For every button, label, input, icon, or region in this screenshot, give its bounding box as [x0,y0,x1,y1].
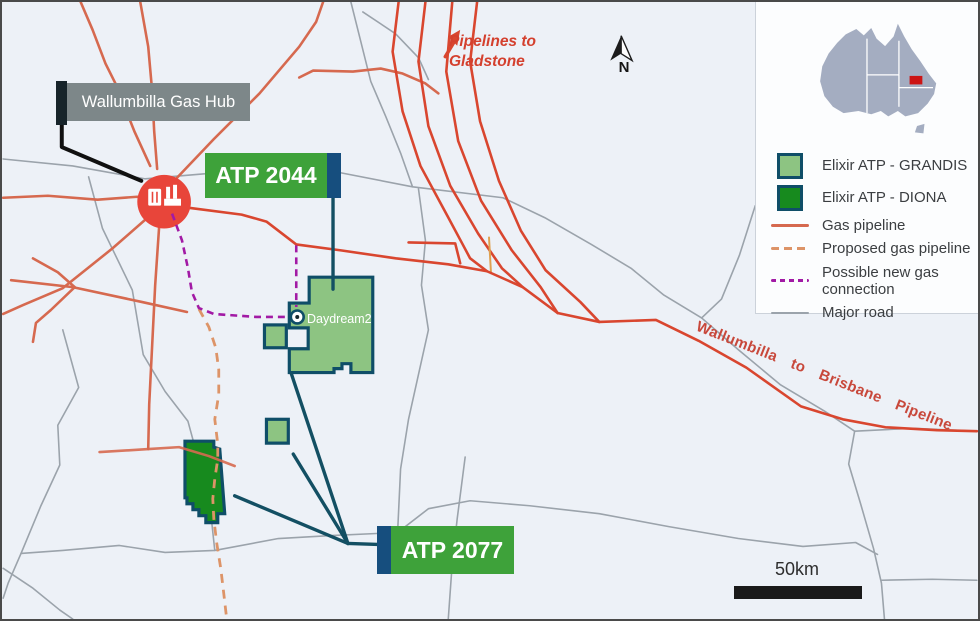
gas-hub-marker [137,175,191,229]
atp-2077-leader [235,496,348,544]
gladstone-annotation: Pipelines to Gladstone [449,32,544,72]
legend-label: Elixir ATP - DIONA [822,189,946,206]
legend-label: Elixir ATP - GRANDIS [822,157,967,174]
tenement-grandis-outlier-south [266,419,288,443]
scale-label: 50km [732,559,862,580]
legend-panel: Elixir ATP - GRANDIS Elixir ATP - DIONA … [755,2,980,314]
atp-2077-leader [291,374,348,544]
grandis-area-swatch [777,153,803,179]
major-road [702,206,756,318]
gas-pipeline-spur [489,237,491,273]
legend-item-grandis: Elixir ATP - GRANDIS [766,150,978,182]
legend-item-major-road: Major road [766,301,978,324]
atp-2077-leader [293,454,348,543]
diona-area-swatch [777,185,803,211]
atp-2077-leader [348,543,378,544]
major-road [398,189,429,533]
legend-item-proposed-pipeline: Proposed gas pipeline [766,237,978,260]
gas-hub-leader [62,124,141,181]
tasmania [915,124,925,134]
daydream-label: Daydream2 [307,312,372,326]
new-connection-swatch [771,279,809,282]
gas-pipeline [33,287,75,342]
major-road [881,579,976,580]
gas-pipeline [148,227,159,450]
project-location-marker [910,76,923,85]
daydream-marker [291,311,304,324]
dashed-routes [172,214,296,619]
gas-pipeline-swatch [771,224,809,227]
legend-label: Proposed gas pipeline [822,240,970,257]
tenement-grandis-outlier-west [264,325,286,348]
callout-bar [327,153,341,198]
legend-item-diona: Elixir ATP - DIONA [766,182,978,214]
callout-bar [56,81,67,125]
legend-item-gas-pipeline: Gas pipeline [766,214,978,237]
legend-item-new-connection: Possible new gas connection [766,261,978,302]
major-road [3,330,79,598]
legend-list: Elixir ATP - GRANDIS Elixir ATP - DIONA … [766,150,978,324]
callout-bar [377,526,391,574]
road-swatch [771,312,809,314]
atp-2077-label: ATP 2077 [391,526,514,574]
gas-hub-label: Wallumbilla Gas Hub [67,83,250,121]
north-arrow-icon [610,36,632,61]
gas-pipeline [11,280,187,312]
proposed-pipeline-swatch [771,247,809,250]
major-road [3,568,73,619]
map-figure: Wallumbilla Gas Hub ATP 2044 ATP 2077 Da… [0,0,980,621]
major-road [351,2,413,187]
legend-label: Gas pipeline [822,217,905,234]
north-label: N [612,59,636,76]
atp-2044-label: ATP 2044 [205,153,327,198]
legend-label: Possible new gas connection [822,264,972,299]
legend-label: Major road [822,304,894,321]
australia-inset-map [766,8,971,150]
scale-bar [734,586,862,599]
